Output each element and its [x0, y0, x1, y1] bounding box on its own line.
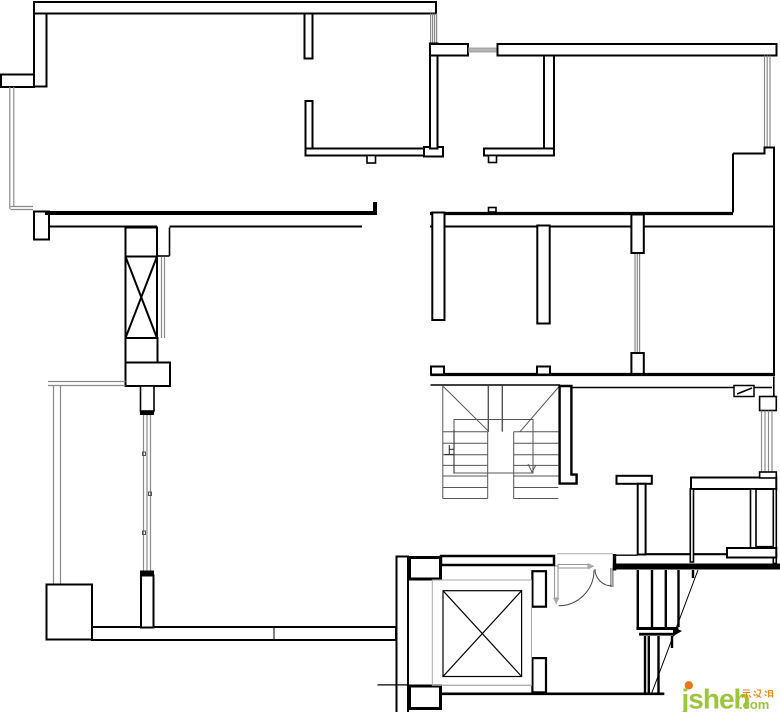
svg-text:.com: .com	[739, 697, 769, 712]
